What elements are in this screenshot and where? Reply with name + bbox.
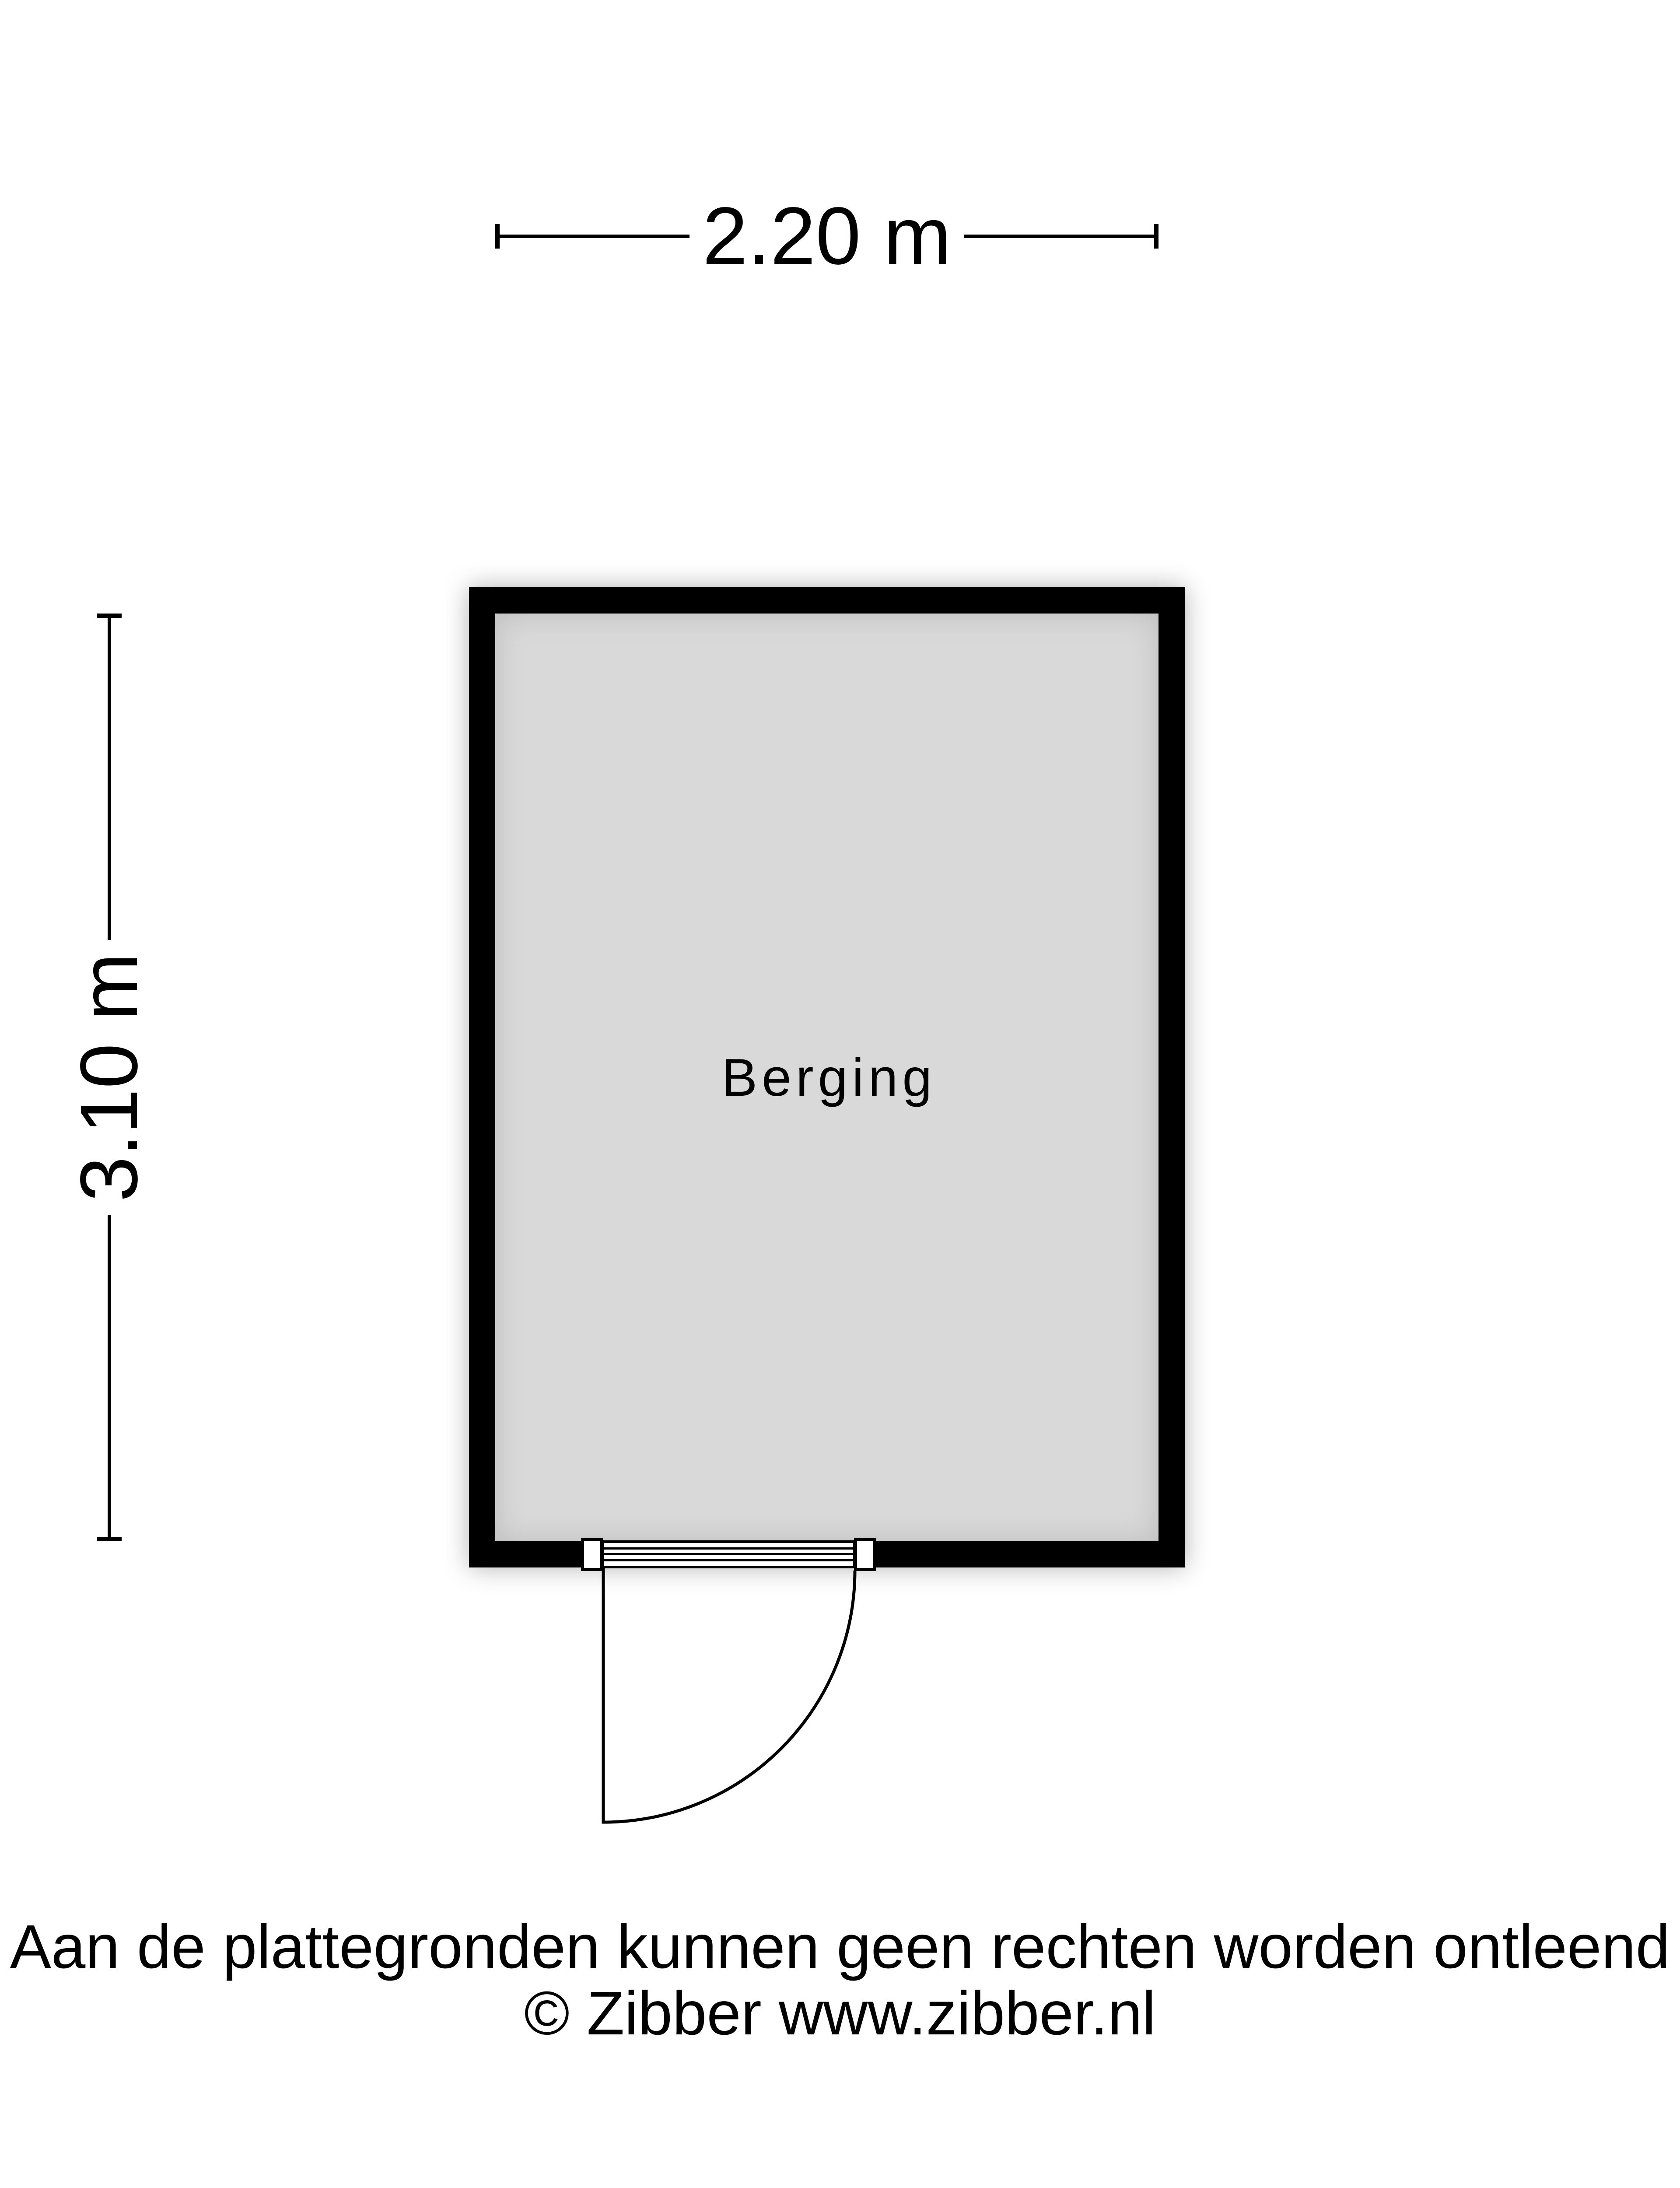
disclaimer-line-2: © Zibber www.zibber.nl — [0, 1980, 1680, 2046]
dimension-line-segment — [964, 235, 1154, 238]
room-berging: Berging — [469, 587, 1185, 1567]
dimension-tick-right — [1154, 224, 1158, 249]
dimension-line-segment — [108, 1215, 111, 1537]
door-jamb-left — [581, 1538, 603, 1571]
door-swing-arc — [601, 1568, 859, 1827]
dimension-line-segment — [500, 235, 689, 238]
disclaimer-text: Aan de plattegronden kunnen geen rechten… — [0, 1913, 1680, 2046]
door-jamb-right — [854, 1538, 876, 1571]
width-dimension-label: 2.20 m — [703, 196, 952, 277]
floorplan-canvas: 2.20 m 3.10 m Berging Aan de plattegrond… — [0, 0, 1680, 2188]
door-threshold — [601, 1540, 856, 1568]
room-label: Berging — [717, 1051, 937, 1104]
dimension-line-segment — [108, 618, 111, 940]
threshold-line — [604, 1547, 853, 1550]
dimension-tick-top — [97, 614, 122, 618]
disclaimer-line-1: Aan de plattegronden kunnen geen rechten… — [0, 1913, 1680, 1980]
dimension-tick-left — [495, 224, 500, 249]
threshold-line — [604, 1559, 853, 1561]
width-dimension: 2.20 m — [495, 193, 1158, 280]
dimension-tick-bottom — [97, 1537, 122, 1541]
threshold-line — [604, 1553, 853, 1555]
height-dimension-label: 3.10 m — [69, 953, 150, 1202]
height-dimension: 3.10 m — [44, 614, 175, 1541]
